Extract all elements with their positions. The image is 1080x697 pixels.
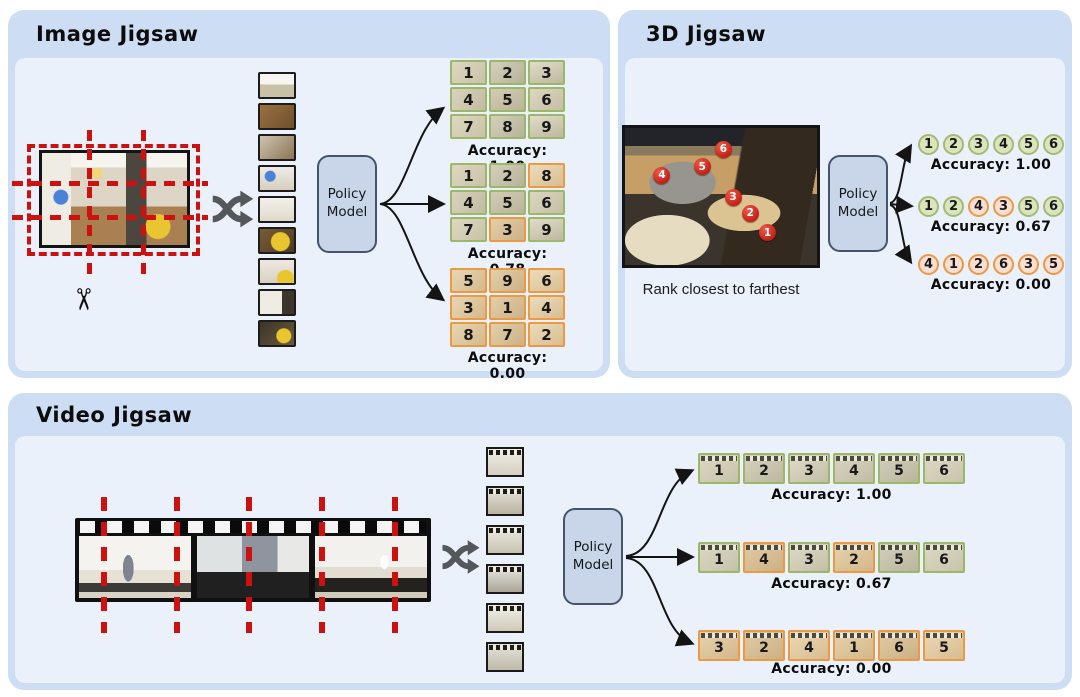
vertical-cut-line (141, 130, 146, 278)
film-frame (197, 536, 309, 598)
film-sprockets (80, 521, 426, 533)
policy-model-box: Policy Model (317, 155, 377, 253)
accuracy-label: Accuracy: 0.00 (698, 661, 965, 677)
rank-circle: 3 (1018, 254, 1039, 275)
depth-rank-marker: 2 (742, 205, 759, 222)
video-frame: 5 (923, 630, 965, 661)
depth-rank-marker: 5 (694, 158, 711, 175)
grid-cell: 4 (450, 190, 487, 215)
horizontal-cut-line (12, 181, 208, 186)
grid-cell: 8 (450, 322, 487, 347)
grid-cell: 4 (528, 295, 565, 320)
video-order-row-2: 143256 (698, 542, 965, 573)
grid-cell: 7 (450, 217, 487, 242)
frame-number: 6 (880, 632, 918, 659)
frame-number: 4 (835, 455, 873, 482)
rank-circle: 1 (918, 196, 939, 217)
image-grid-3: 596314872 (450, 268, 565, 347)
frame-number: 5 (880, 455, 918, 482)
image-patch (258, 72, 296, 99)
rank-circle: 4 (918, 254, 939, 275)
clip-thumbnail (486, 564, 524, 594)
video-frame: 4 (788, 630, 830, 661)
3d-jigsaw-panel: 3D Jigsaw 456321 Rank closest to farthes… (618, 10, 1072, 378)
vertical-cut-line (87, 130, 92, 278)
rank-circle: 4 (968, 196, 989, 217)
frame-number: 5 (925, 632, 963, 659)
ranking-row-3: 412635 (918, 254, 1064, 275)
accuracy-label: Accuracy: 1.00 (698, 487, 965, 503)
video-frame: 3 (788, 453, 830, 484)
accuracy-label: Accuracy: 0.67 (698, 576, 965, 592)
video-frame: 2 (743, 453, 785, 484)
image-grid-2: 128456739 (450, 163, 565, 242)
grid-cell: 3 (450, 295, 487, 320)
video-jigsaw-title: Video Jigsaw (36, 403, 192, 427)
grid-cell: 3 (489, 217, 526, 242)
grid-cell: 5 (489, 190, 526, 215)
frame-number: 4 (745, 544, 783, 571)
shuffled-patch-column (258, 72, 296, 347)
frame-number: 6 (925, 455, 963, 482)
rank-circle: 5 (1043, 254, 1064, 275)
shuffle-icon (210, 188, 256, 230)
grid-cell: 9 (489, 268, 526, 293)
vertical-cut-line (319, 497, 325, 633)
grid-cell: 3 (528, 60, 565, 85)
clip-thumbnail (486, 447, 524, 477)
policy-model-box: Policy Model (563, 508, 623, 605)
video-frame: 4 (833, 453, 875, 484)
frame-number: 2 (745, 455, 783, 482)
image-jigsaw-title: Image Jigsaw (36, 22, 199, 46)
frame-number: 3 (790, 544, 828, 571)
film-frame (315, 536, 427, 598)
image-patch (258, 134, 296, 161)
depth-rank-marker: 4 (653, 167, 670, 184)
scene-image: 456321 (622, 125, 820, 268)
video-jigsaw-panel: Video Jigsaw Policy Model (8, 393, 1072, 690)
frame-number: 4 (790, 632, 828, 659)
video-frame: 1 (698, 453, 740, 484)
accuracy-label: Accuracy: 0.00 (918, 277, 1064, 293)
clip-thumbnail (486, 642, 524, 672)
grid-cell: 8 (489, 114, 526, 139)
video-frame: 6 (878, 630, 920, 661)
video-order-row-3: 324165 (698, 630, 965, 661)
vertical-cut-line (246, 497, 252, 633)
video-frame: 3 (698, 630, 740, 661)
ranking-row-1: 123456 (918, 134, 1064, 155)
grid-cell: 7 (450, 114, 487, 139)
grid-cell: 2 (489, 60, 526, 85)
rank-circle: 3 (993, 196, 1014, 217)
image-patch (258, 227, 296, 254)
accuracy-label: Accuracy: 1.00 (918, 157, 1064, 173)
depth-rank-marker: 6 (715, 141, 732, 158)
vertical-cut-line (174, 497, 180, 633)
grid-cell: 5 (489, 87, 526, 112)
scene-caption: Rank closest to farthest (622, 281, 820, 298)
grid-cell: 5 (450, 268, 487, 293)
cut-outline (27, 144, 200, 256)
image-patch (258, 165, 296, 192)
clip-thumbnail (486, 525, 524, 555)
vertical-cut-line (392, 497, 398, 633)
image-jigsaw-panel: Image Jigsaw ✂ Policy Model (8, 10, 610, 378)
grid-cell: 4 (450, 87, 487, 112)
video-frame: 1 (698, 542, 740, 573)
rank-circle: 1 (943, 254, 964, 275)
image-patch (258, 320, 296, 347)
grid-cell: 9 (528, 217, 565, 242)
shuffle-icon (440, 538, 482, 576)
grid-cell: 9 (528, 114, 565, 139)
depth-rank-marker: 3 (725, 189, 742, 206)
rank-circle: 5 (1018, 134, 1039, 155)
rank-circle: 6 (1043, 134, 1064, 155)
video-frame: 3 (788, 542, 830, 573)
video-frame: 5 (878, 453, 920, 484)
frame-number: 2 (835, 544, 873, 571)
rank-circle: 6 (993, 254, 1014, 275)
grid-cell: 2 (489, 163, 526, 188)
rank-circle: 2 (968, 254, 989, 275)
rank-circle: 2 (943, 134, 964, 155)
grid-cell: 1 (450, 60, 487, 85)
image-patch (258, 196, 296, 223)
image-patch (258, 289, 296, 316)
policy-model-box: Policy Model (828, 155, 888, 252)
rank-circle: 5 (1018, 196, 1039, 217)
jigsaw-figure: Image Jigsaw ✂ Policy Model (0, 0, 1080, 697)
frame-number: 1 (700, 455, 738, 482)
accuracy-label: Accuracy: 0.67 (918, 219, 1064, 235)
image-patch (258, 103, 296, 130)
accuracy-label: Accuracy: 0.00 (450, 350, 565, 382)
rank-circle: 3 (968, 134, 989, 155)
frame-number: 1 (835, 632, 873, 659)
vertical-cut-line (101, 497, 107, 633)
grid-cell: 1 (450, 163, 487, 188)
grid-cell: 1 (489, 295, 526, 320)
video-frame: 2 (833, 542, 875, 573)
source-filmstrip (75, 518, 431, 602)
grid-cell: 6 (528, 268, 565, 293)
3d-jigsaw-title: 3D Jigsaw (646, 22, 766, 46)
rank-circle: 4 (993, 134, 1014, 155)
shuffled-clip-column (486, 447, 524, 672)
video-frame: 5 (878, 542, 920, 573)
scissors-icon: ✂ (65, 287, 100, 312)
image-grid-1: 123456789 (450, 60, 565, 139)
video-frame: 6 (923, 542, 965, 573)
video-frame: 1 (833, 630, 875, 661)
ranking-row-2: 124356 (918, 196, 1064, 217)
grid-cell: 6 (528, 87, 565, 112)
image-patch (258, 258, 296, 285)
rank-circle: 6 (1043, 196, 1064, 217)
rank-circle: 2 (943, 196, 964, 217)
frame-number: 6 (925, 544, 963, 571)
frame-number: 1 (700, 544, 738, 571)
video-order-row-1: 123456 (698, 453, 965, 484)
grid-cell: 2 (528, 322, 565, 347)
horizontal-cut-line (12, 215, 208, 220)
clip-thumbnail (486, 603, 524, 633)
frame-number: 2 (745, 632, 783, 659)
clip-thumbnail (486, 486, 524, 516)
grid-cell: 8 (528, 163, 565, 188)
grid-cell: 7 (489, 322, 526, 347)
video-frame: 6 (923, 453, 965, 484)
frame-number: 5 (880, 544, 918, 571)
video-frame: 4 (743, 542, 785, 573)
frame-number: 3 (790, 455, 828, 482)
grid-cell: 6 (528, 190, 565, 215)
depth-rank-marker: 1 (759, 224, 776, 241)
rank-circle: 1 (918, 134, 939, 155)
frame-number: 3 (700, 632, 738, 659)
video-frame: 2 (743, 630, 785, 661)
